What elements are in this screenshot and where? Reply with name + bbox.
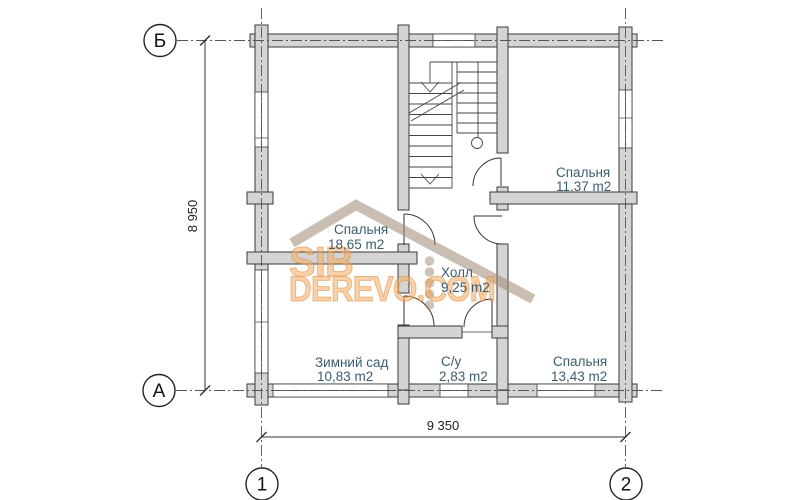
grid-bubble-1: 1 bbox=[246, 468, 278, 500]
svg-text:С/у: С/у bbox=[441, 354, 462, 369]
floor-plan-page: SIB DEREVO.COM Спальня 18,65 m2 Спальня … bbox=[0, 0, 800, 500]
log-crossing-bottom-1 bbox=[398, 390, 409, 404]
window-left-bedroom bbox=[255, 92, 268, 147]
stair-arrow-upper bbox=[421, 82, 439, 92]
svg-text:1: 1 bbox=[257, 475, 268, 496]
wall-hall-right-upper bbox=[497, 27, 508, 153]
wall-hall-left-upper bbox=[398, 25, 409, 210]
svg-text:Б: Б bbox=[154, 31, 166, 52]
log-crossing-left-wall bbox=[247, 192, 273, 204]
svg-text:Спальня: Спальня bbox=[553, 354, 607, 369]
walls bbox=[247, 25, 637, 405]
dimension-vertical: 8 950 bbox=[185, 36, 210, 396]
svg-text:Зимний сад: Зимний сад bbox=[315, 355, 389, 370]
wall-bathroom-top-b bbox=[492, 326, 508, 338]
svg-text:Спальня: Спальня bbox=[334, 222, 388, 237]
svg-text:Холл: Холл bbox=[441, 265, 473, 280]
staircase bbox=[409, 62, 497, 188]
svg-text:11,37 m2: 11,37 m2 bbox=[556, 179, 611, 194]
svg-text:А: А bbox=[153, 381, 166, 402]
grid-bubble-2: 2 bbox=[610, 468, 642, 500]
svg-text:13,43 m2: 13,43 m2 bbox=[551, 369, 607, 384]
wall-hall-right-lower bbox=[497, 244, 508, 404]
stair-newel-post bbox=[472, 138, 483, 149]
svg-text:10,83 m2: 10,83 m2 bbox=[317, 369, 373, 384]
svg-text:18,65 m2: 18,65 m2 bbox=[328, 237, 384, 252]
grid-bubble-B: Б bbox=[144, 25, 176, 57]
floor-plan-drawing: SIB DEREVO.COM Спальня 18,65 m2 Спальня … bbox=[0, 0, 800, 500]
room-label-bedroom-1343: Спальня 13,43 m2 bbox=[551, 354, 607, 384]
room-label-bedroom-1865: Спальня 18,65 m2 bbox=[328, 222, 388, 252]
door-hall-to-bedroom-1343 bbox=[474, 216, 502, 244]
dimension-vertical-value: 8 950 bbox=[185, 200, 200, 233]
door-stairwell-to-bedroom-1137 bbox=[473, 158, 501, 186]
dimension-horizontal: 9 350 bbox=[257, 418, 631, 442]
windows bbox=[255, 34, 632, 397]
svg-text:2: 2 bbox=[621, 475, 632, 496]
svg-text:Спальня: Спальня bbox=[556, 165, 610, 180]
svg-text:9,25 m2: 9,25 m2 bbox=[441, 280, 490, 295]
stair-arrow-lower bbox=[421, 174, 439, 184]
wall-bathroom-top-a bbox=[398, 326, 462, 338]
svg-text:2,83 m2: 2,83 m2 bbox=[439, 369, 488, 384]
room-label-bathroom: С/у 2,83 m2 bbox=[439, 354, 488, 384]
dimension-horizontal-value: 9 350 bbox=[427, 418, 460, 433]
room-label-winter-garden: Зимний сад 10,83 m2 bbox=[315, 355, 389, 384]
log-crossing-bottom-2 bbox=[497, 390, 508, 404]
room-label-bedroom-1137: Спальня 11,37 m2 bbox=[556, 165, 611, 194]
grid-bubble-A: А bbox=[143, 375, 175, 407]
